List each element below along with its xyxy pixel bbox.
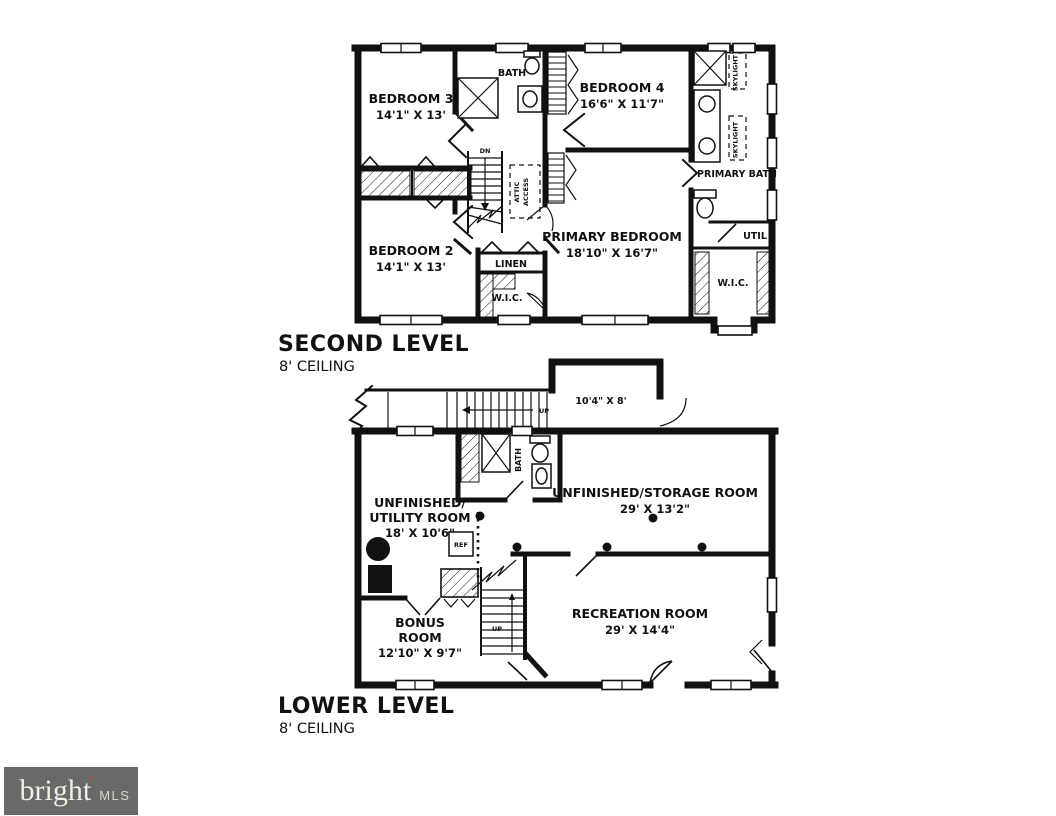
hall-bath	[458, 51, 542, 118]
bedroom4-dims: 16'6" X 11'7"	[580, 97, 664, 111]
storage-room-dims: 29' X 13'2"	[620, 502, 690, 516]
brightmls-logo: bright*MLS	[4, 767, 138, 815]
bedroom3-dims: 14'1" X 13'	[376, 108, 446, 122]
linen-closet	[482, 242, 538, 252]
second-level-plan: BEDROOM 3 14'1" X 13' BATH BEDROOM 4 16'…	[278, 44, 777, 376]
skylight-upper-label: SKYLIGHT	[732, 54, 740, 91]
bath-closet	[461, 434, 479, 482]
brightmls-logo-mls: MLS	[99, 788, 130, 803]
second-level-title: SECOND LEVEL	[278, 332, 469, 357]
utility-room-dims: 18' X 10'6"	[385, 526, 455, 540]
second-level-ceiling: 8' CEILING	[279, 359, 355, 375]
lower-toilet-icon	[530, 436, 550, 462]
entry-dims: 10'4" X 8'	[575, 396, 626, 407]
break-line-left	[350, 386, 372, 434]
recreation-room-label: RECREATION ROOM	[572, 606, 708, 621]
primary-closet	[548, 153, 576, 203]
furnace	[368, 565, 392, 593]
wic-primary-label: W.I.C.	[717, 278, 748, 289]
lower-level-ceiling: 8' CEILING	[279, 721, 355, 737]
sink-vanity	[518, 86, 542, 112]
lower-shower	[482, 434, 510, 472]
stairs-down	[468, 158, 502, 228]
up-stairs-label: UP	[492, 625, 502, 633]
double-vanity	[694, 90, 720, 162]
shower	[458, 78, 498, 118]
bedroom4-closet	[548, 52, 578, 114]
skylight-lower-label: SKYLIGHT	[732, 121, 740, 158]
util-label: UTIL	[743, 231, 767, 242]
water-heater	[366, 537, 390, 561]
bonus-room-label-1: BONUS	[395, 615, 445, 630]
bedroom2-label: BEDROOM 2	[369, 243, 454, 258]
attic-access-line1: ATTIC	[513, 181, 521, 202]
stairs-up-top	[388, 392, 547, 428]
lower-level-title: LOWER LEVEL	[278, 694, 454, 719]
exterior-doors	[650, 640, 772, 683]
primary-bedroom-label: PRIMARY BEDROOM	[542, 229, 682, 244]
stairs-up-lower	[472, 554, 525, 658]
toilet-icon	[524, 51, 540, 74]
attic-access-line2: ACCESS	[522, 178, 530, 206]
primary-bedroom-dims: 18'10" X 16'7"	[566, 246, 658, 260]
bonus-room-walls	[358, 598, 545, 680]
storage-room-label: UNFINISHED/STORAGE ROOM	[552, 485, 758, 500]
bonus-room-dims: 12'10" X 9'7"	[378, 646, 462, 660]
recreation-room-dims: 29' X 14'4"	[605, 623, 675, 637]
recreation-wall	[513, 554, 772, 576]
floorplan-svg: BEDROOM 3 14'1" X 13' BATH BEDROOM 4 16'…	[0, 0, 1056, 816]
support-columns	[476, 512, 707, 552]
bedroom3-label: BEDROOM 3	[369, 91, 454, 106]
lower-sink	[532, 464, 551, 488]
bath-label: BATH	[498, 68, 526, 79]
dn-label: DN	[480, 147, 491, 155]
ref-label: REF	[454, 541, 468, 549]
bedroom2-dims: 14'1" X 13'	[376, 260, 446, 274]
primary-toilet-icon	[694, 190, 716, 218]
brightmls-logo-brand: bright	[20, 776, 92, 806]
stair-closet	[441, 569, 478, 607]
bonus-room-label-2: ROOM	[398, 630, 441, 645]
bedroom4-label: BEDROOM 4	[580, 80, 665, 95]
entry-door	[660, 398, 686, 426]
floorplan-canvas: BEDROOM 3 14'1" X 13' BATH BEDROOM 4 16'…	[0, 0, 1056, 816]
lower-bath-label: BATH	[514, 448, 523, 472]
lower-level-plan: 10'4" X 8' UP BATH REF UNFINISHED/ UTILI…	[278, 362, 777, 737]
lower-bath	[458, 431, 560, 500]
utility-room-label-2: UTILITY ROOM	[369, 510, 470, 525]
wic-hall-label: W.I.C.	[491, 293, 522, 304]
linen-label: LINEN	[495, 259, 527, 270]
bath-door	[505, 481, 523, 500]
primary-bath-label: PRIMARY BATH	[697, 169, 777, 180]
up-top-label: UP	[539, 407, 549, 415]
primary-shower	[694, 51, 726, 85]
utility-room-label-1: UNFINISHED/	[374, 495, 466, 510]
